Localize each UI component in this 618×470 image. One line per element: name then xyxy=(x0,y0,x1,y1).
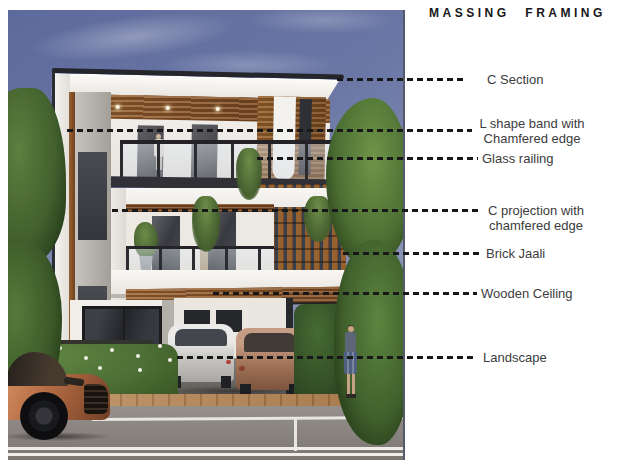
leader-line-c-projection xyxy=(112,209,478,212)
tail-light xyxy=(226,360,231,364)
car-rear-window xyxy=(244,333,296,352)
car-rear-window xyxy=(175,329,227,346)
annotation-c-projection: C projection with chamfered edge xyxy=(480,203,592,233)
massing-framing-diagram: MASSING FRAMING C Section L shape band w… xyxy=(0,0,618,470)
annotation-l-shape-band: L shape band with Chamfered edge xyxy=(476,116,588,146)
copper-sports-car xyxy=(8,350,112,442)
hanging-plant xyxy=(192,196,220,252)
leader-line-glass-railing xyxy=(257,157,478,160)
car-wheel xyxy=(20,392,68,440)
leader-line-l-shape-band xyxy=(67,129,472,132)
annotation-landscape: Landscape xyxy=(483,350,547,365)
leader-line-landscape xyxy=(177,356,475,359)
person-torso xyxy=(345,332,356,354)
page-title: MASSING FRAMING xyxy=(429,6,606,20)
annotation-c-section: C Section xyxy=(487,72,543,87)
front-grille xyxy=(84,384,108,414)
leader-line-c-section xyxy=(337,78,467,81)
downlight xyxy=(166,106,170,110)
road-marking xyxy=(8,447,403,450)
annotation-brick-jaali: Brick Jaali xyxy=(486,246,545,261)
leader-line-brick-jaali xyxy=(343,252,482,255)
annotation-wooden-ceiling: Wooden Ceiling xyxy=(481,286,573,301)
tail-light xyxy=(239,366,245,371)
person-shoes xyxy=(346,394,356,398)
hanging-plant xyxy=(236,148,262,200)
annotation-glass-railing: Glass railing xyxy=(482,151,554,166)
car-wheel xyxy=(221,376,231,388)
downlight xyxy=(216,107,220,111)
downlight xyxy=(116,105,120,109)
person-legs xyxy=(352,374,355,394)
road-marking xyxy=(8,453,403,456)
person-legs xyxy=(347,374,350,394)
window-panel xyxy=(78,152,107,240)
leader-line-wooden-ceiling xyxy=(213,292,477,295)
walking-woman xyxy=(342,326,360,404)
car-windshield xyxy=(8,352,68,386)
